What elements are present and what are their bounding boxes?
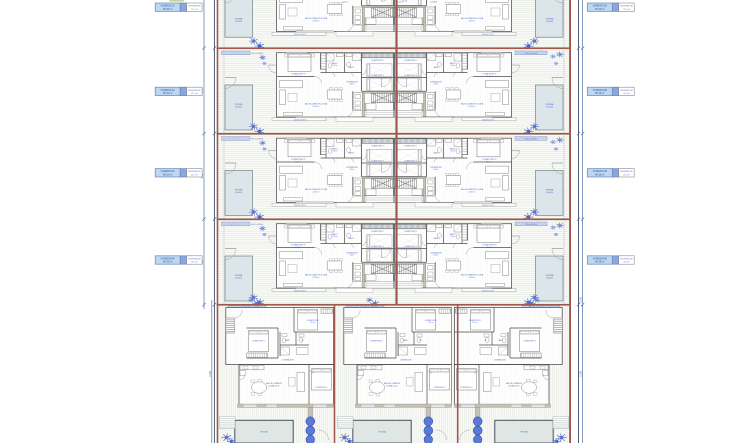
svg-text:PISCINA: PISCINA <box>235 274 243 277</box>
svg-text:SUPERFICIE: SUPERFICIE <box>620 6 633 8</box>
svg-text:DORMITORIO 3: DORMITORIO 3 <box>404 75 416 77</box>
svg-text:VIVIENDA 4B: VIVIENDA 4B <box>593 257 608 260</box>
svg-text:3.00x6.00: 3.00x6.00 <box>235 21 242 23</box>
svg-text:DORMITORIO 3: DORMITORIO 3 <box>371 246 383 248</box>
svg-text:PISCINA: PISCINA <box>546 18 554 21</box>
svg-text:DORMITORIO 3: DORMITORIO 3 <box>404 246 416 248</box>
svg-text:22.35 m²: 22.35 m² <box>469 190 476 193</box>
svg-text:VIVIENDA 3A: VIVIENDA 3A <box>161 170 176 173</box>
svg-text:DORMITORIO 2: DORMITORIO 2 <box>252 341 264 343</box>
svg-text:PISCINA: PISCINA <box>546 189 554 192</box>
svg-text:SUPERFICIE: SUPERFICIE <box>188 258 201 260</box>
svg-text:DORMITORIO 2: DORMITORIO 2 <box>370 341 382 343</box>
svg-text:B2: B2 <box>302 340 304 342</box>
svg-text:22.35 m²: 22.35 m² <box>313 19 320 22</box>
svg-text:DISTRIBUIDOR: DISTRIBUIDOR <box>346 167 358 169</box>
svg-text:212 m²: 212 m² <box>191 92 198 95</box>
svg-text:86.15 m²: 86.15 m² <box>595 8 604 11</box>
svg-text:VIVIENDA 2A: VIVIENDA 2A <box>161 89 176 92</box>
svg-text:SALON-COMEDOR: SALON-COMEDOR <box>506 382 523 385</box>
svg-text:COCINA: COCINA <box>430 1 437 4</box>
svg-text:22.35 m²: 22.35 m² <box>313 276 320 279</box>
svg-text:212 m²: 212 m² <box>623 92 630 95</box>
svg-text:SUPERFICIE: SUPERFICIE <box>620 258 633 260</box>
svg-text:B2: B2 <box>420 340 422 342</box>
svg-text:SALON-COMEDOR: SALON-COMEDOR <box>384 382 401 385</box>
svg-text:SUPERFICIE: SUPERFICIE <box>188 90 201 92</box>
svg-text:212 m²: 212 m² <box>623 261 630 264</box>
svg-text:12.30 m²: 12.30 m² <box>295 160 302 163</box>
svg-text:22.35 m²: 22.35 m² <box>313 105 320 108</box>
svg-text:PISCINA: PISCINA <box>546 103 554 106</box>
svg-text:212 m²: 212 m² <box>623 8 630 11</box>
svg-text:SUPERFICIE: SUPERFICIE <box>620 90 633 92</box>
svg-text:PISCINA: PISCINA <box>378 431 386 434</box>
svg-text:DISTRIBUIDOR: DISTRIBUIDOR <box>282 360 294 362</box>
svg-text:DORMITORIO 1: DORMITORIO 1 <box>425 320 437 322</box>
svg-text:12.30 m²: 12.30 m² <box>486 246 493 249</box>
svg-text:DORMITORIO 3: DORMITORIO 3 <box>371 75 383 77</box>
svg-text:DORMITORIO 2: DORMITORIO 2 <box>371 60 383 62</box>
svg-text:PISCINA: PISCINA <box>546 274 554 277</box>
svg-text:3.00x6.00: 3.00x6.00 <box>546 277 553 279</box>
svg-text:DORMITORIO 1: DORMITORIO 1 <box>307 320 319 322</box>
svg-text:VIVIENDA 3B: VIVIENDA 3B <box>593 170 608 173</box>
svg-text:22.35 m²: 22.35 m² <box>469 19 476 22</box>
svg-text:B2: B2 <box>485 340 487 342</box>
svg-text:12.30 m²: 12.30 m² <box>295 246 302 249</box>
svg-text:PISCINA: PISCINA <box>235 189 243 192</box>
svg-text:86.15 m²: 86.15 m² <box>163 92 172 95</box>
svg-text:2.40 m²: 2.40 m² <box>398 1 404 4</box>
svg-text:22.35 m²: 22.35 m² <box>469 105 476 108</box>
svg-text:3.00x6.00: 3.00x6.00 <box>546 106 553 108</box>
svg-text:212 m²: 212 m² <box>191 8 198 11</box>
svg-text:DORMITORIO 2: DORMITORIO 2 <box>404 146 416 148</box>
svg-text:12.30 m²: 12.30 m² <box>295 75 302 78</box>
svg-text:DORMITORIO 3: DORMITORIO 3 <box>434 387 446 389</box>
svg-text:3.00x6.00: 3.00x6.00 <box>546 192 553 194</box>
svg-text:DISTRIBUIDOR: DISTRIBUIDOR <box>346 82 358 84</box>
svg-text:SUPERFICIE: SUPERFICIE <box>188 6 201 8</box>
svg-text:86.15 m²: 86.15 m² <box>163 174 172 177</box>
svg-text:13.85: 13.85 <box>580 370 583 377</box>
svg-text:VIVIENDA 1B: VIVIENDA 1B <box>593 5 608 8</box>
svg-text:PISCINA: PISCINA <box>520 431 528 434</box>
svg-text:13.85: 13.85 <box>209 370 212 377</box>
svg-text:DORMITORIO 2: DORMITORIO 2 <box>371 231 383 233</box>
svg-text:DORMITORIO 3: DORMITORIO 3 <box>404 161 416 163</box>
svg-text:3.00x6.00: 3.00x6.00 <box>235 192 242 194</box>
svg-text:DORMITORIO 3: DORMITORIO 3 <box>461 387 473 389</box>
svg-text:DORMITORIO 3: DORMITORIO 3 <box>316 387 328 389</box>
svg-text:SUPERFICIE: SUPERFICIE <box>620 171 633 173</box>
svg-text:DORMITORIO 2: DORMITORIO 2 <box>404 231 416 233</box>
svg-text:12.30 m²: 12.30 m² <box>486 160 493 163</box>
svg-text:VIVIENDA 4A: VIVIENDA 4A <box>161 257 176 260</box>
svg-text:86.15 m²: 86.15 m² <box>595 92 604 95</box>
svg-text:DISTRIBUIDOR: DISTRIBUIDOR <box>494 360 506 362</box>
svg-text:12.30 m²: 12.30 m² <box>486 75 493 78</box>
svg-text:PISCINA: PISCINA <box>235 103 243 106</box>
svg-text:DISTRIBUIDOR: DISTRIBUIDOR <box>346 253 358 255</box>
svg-text:3.00x6.00: 3.00x6.00 <box>546 21 553 23</box>
svg-text:3.00x6.00: 3.00x6.00 <box>235 106 242 108</box>
svg-text:22.35 m²: 22.35 m² <box>313 190 320 193</box>
svg-text:VIVIENDA 2B: VIVIENDA 2B <box>593 89 608 92</box>
svg-text:DISTRIBUIDOR: DISTRIBUIDOR <box>430 253 442 255</box>
svg-text:VIVIENDA 1A: VIVIENDA 1A <box>161 5 176 8</box>
svg-text:212 m²: 212 m² <box>191 261 198 264</box>
svg-text:3.00x6.00: 3.00x6.00 <box>235 277 242 279</box>
svg-text:2.40 m²: 2.40 m² <box>343 1 349 4</box>
svg-text:DISTRIBUIDOR: DISTRIBUIDOR <box>430 167 442 169</box>
svg-text:86.15 m²: 86.15 m² <box>595 261 604 264</box>
svg-text:DORMITORIO 2: DORMITORIO 2 <box>404 60 416 62</box>
svg-text:DORMITORIO 3: DORMITORIO 3 <box>371 161 383 163</box>
svg-text:86.15 m²: 86.15 m² <box>163 261 172 264</box>
svg-text:DORMITORIO 2: DORMITORIO 2 <box>371 146 383 148</box>
svg-text:PISCINA: PISCINA <box>260 431 268 434</box>
svg-text:212 m²: 212 m² <box>623 174 630 177</box>
svg-text:212 m²: 212 m² <box>191 174 198 177</box>
svg-text:86.15 m²: 86.15 m² <box>595 174 604 177</box>
svg-text:86.15 m²: 86.15 m² <box>163 8 172 11</box>
svg-text:DORMITORIO 2: DORMITORIO 2 <box>523 341 535 343</box>
svg-text:25.95: 25.95 <box>580 296 583 303</box>
svg-text:DORMITORIO 1: DORMITORIO 1 <box>469 320 481 322</box>
svg-text:DISTRIBUIDOR: DISTRIBUIDOR <box>430 82 442 84</box>
svg-text:PISCINA: PISCINA <box>235 18 243 21</box>
svg-text:SUPERFICIE: SUPERFICIE <box>188 171 201 173</box>
svg-text:22.35 m²: 22.35 m² <box>469 276 476 279</box>
svg-text:SALON-COMEDOR: SALON-COMEDOR <box>266 382 283 385</box>
svg-text:DISTRIBUIDOR: DISTRIBUIDOR <box>400 360 412 362</box>
